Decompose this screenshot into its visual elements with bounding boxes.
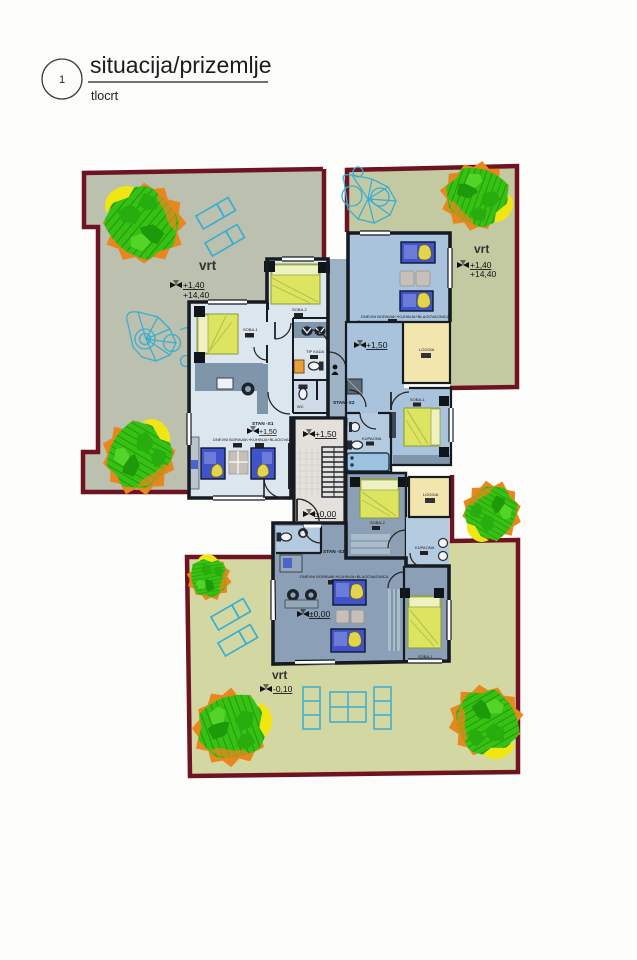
- svg-text:WC: WC: [297, 404, 304, 409]
- svg-text:+14,40: +14,40: [183, 290, 210, 300]
- svg-text:LOGGIA: LOGGIA: [419, 347, 435, 352]
- svg-text:KUPAONA: KUPAONA: [362, 436, 382, 441]
- svg-text:+1,40: +1,40: [183, 280, 205, 290]
- svg-text:+1,50: +1,50: [366, 340, 388, 350]
- svg-text:SOBA-1: SOBA-1: [410, 397, 425, 402]
- svg-text:vrt: vrt: [199, 258, 217, 273]
- svg-text:vrt: vrt: [272, 668, 287, 682]
- svg-text:SOBA-1: SOBA-1: [243, 327, 258, 332]
- svg-text:DNEVNI BORAVAK+KUHINJA+BLAGOVA: DNEVNI BORAVAK+KUHINJA+BLAGOVAONICA: [213, 437, 302, 442]
- svg-text:situacija/prizemlje: situacija/prizemlje: [90, 52, 272, 78]
- svg-text:TIP KADA: TIP KADA: [306, 349, 324, 354]
- svg-text:-0,10: -0,10: [273, 684, 293, 694]
- svg-text:STAN -S3: STAN -S3: [323, 549, 345, 555]
- svg-text:vrt: vrt: [474, 242, 489, 256]
- svg-text:LOGGIA: LOGGIA: [423, 492, 439, 497]
- svg-text:+1,50: +1,50: [315, 429, 337, 439]
- svg-text:KUPAONA: KUPAONA: [415, 545, 435, 550]
- svg-text:DNEVNI BORAVAK+KUHINJA+BLAGOVA: DNEVNI BORAVAK+KUHINJA+BLAGOVAONICA: [361, 314, 450, 319]
- svg-text:1: 1: [59, 74, 65, 86]
- svg-text:SOBA-2: SOBA-2: [370, 520, 385, 525]
- svg-text:+14,40: +14,40: [470, 269, 497, 279]
- svg-text:SOBA-1: SOBA-1: [418, 654, 433, 659]
- svg-text:±0,00: ±0,00: [309, 609, 330, 619]
- svg-text:STAN -S2: STAN -S2: [333, 400, 355, 406]
- svg-text:DNEVNI BORAVAK+KUHINJA+BLAGOVA: DNEVNI BORAVAK+KUHINJA+BLAGOVAONICA: [300, 574, 389, 579]
- svg-text:+1,50: +1,50: [259, 429, 277, 436]
- svg-text:SOBA-2: SOBA-2: [292, 307, 307, 312]
- svg-text:tlocrt: tlocrt: [91, 89, 119, 103]
